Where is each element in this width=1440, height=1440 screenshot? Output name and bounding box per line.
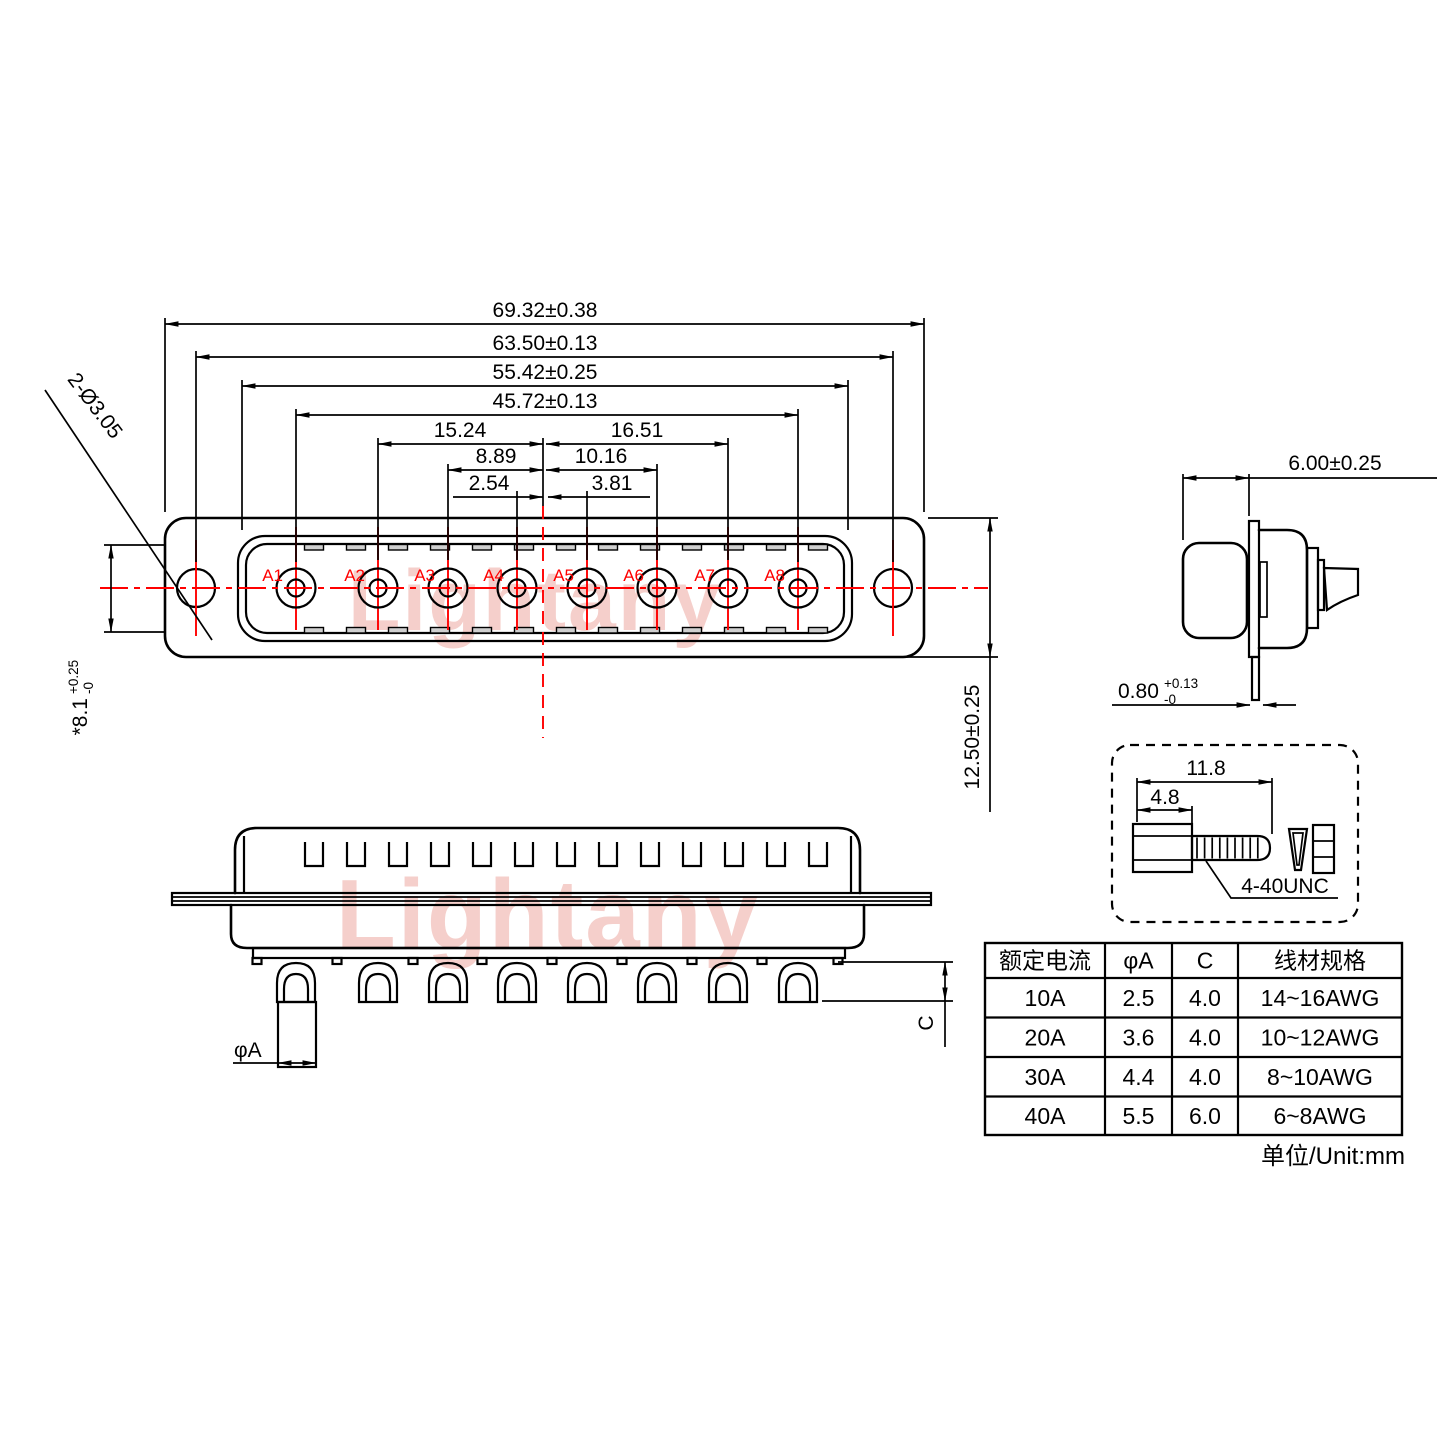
table-header-cell: 额定电流 [999, 948, 1091, 974]
shroud-slot-bottom [473, 628, 492, 634]
dim-opening-height: *8.1 [69, 698, 92, 735]
table-cell: 10A [1025, 985, 1067, 1011]
connector-drawing-svg: Lightany Lightany A1A2A3A4A5A6A7A8 [0, 0, 1440, 1440]
shroud-slot-bottom [599, 628, 618, 634]
solder-barrel-inner [284, 974, 308, 1002]
solder-barrel-inner [575, 974, 599, 1002]
unit-note: 单位/Unit:mm [1261, 1143, 1405, 1170]
technical-drawing-page: Lightany Lightany A1A2A3A4A5A6A7A8 [0, 0, 1440, 1440]
dim-pin-diameter-label: φA [234, 1039, 262, 1062]
shroud-slot-bottom [389, 628, 408, 634]
thread-spec-label: 4-40UNC [1241, 875, 1329, 898]
shroud-slot-bottom [683, 628, 702, 634]
shroud-slot-top [809, 545, 828, 551]
profile-cable-exit [1324, 568, 1358, 610]
solder-barrel-inner [366, 974, 390, 1002]
dim-center-a5: 3.81 [592, 472, 633, 495]
dim-a2-center: 15.24 [434, 419, 487, 442]
pin-label: A7 [694, 566, 715, 585]
table-cell: 8~10AWG [1267, 1064, 1373, 1090]
dim-shell-width: 55.42±0.25 [493, 361, 598, 384]
table-cell: 20A [1025, 1024, 1067, 1050]
shroud-slot-bottom [347, 628, 366, 634]
right-annotation: 12.50±0.25 [900, 518, 998, 812]
dim-overall-width: 69.32±0.38 [493, 299, 598, 322]
screw-ferrule-part [1313, 825, 1334, 873]
solder-barrel-inner [716, 974, 740, 1002]
table-cell: 30A [1025, 1064, 1067, 1090]
profile-flange-plate [1249, 521, 1259, 657]
shroud-slot-top [431, 545, 450, 551]
table-cell: 4.0 [1189, 985, 1221, 1011]
table-cell: 10~12AWG [1261, 1024, 1380, 1050]
shell-slot [809, 842, 827, 866]
table-cell: 14~16AWG [1261, 985, 1380, 1011]
solder-barrel-inner [786, 974, 810, 1002]
shroud-slot-top [305, 545, 324, 551]
profile-flange-tab [1252, 657, 1259, 700]
base-foot [834, 958, 843, 964]
pin-label: A2 [344, 566, 365, 585]
shell-slot [305, 842, 323, 866]
dim-mount-span: 63.50±0.13 [493, 332, 598, 355]
table-cell: 6~8AWG [1273, 1103, 1366, 1129]
pin-label: A8 [764, 566, 785, 585]
pin-label: A1 [262, 566, 283, 585]
table-cell: 6.0 [1189, 1103, 1221, 1129]
base-foot [253, 958, 262, 964]
side-pin-a1-extension [278, 1002, 316, 1067]
dim-a3-center: 8.89 [476, 445, 517, 468]
shroud-slot-bottom [557, 628, 576, 634]
dim-flange-height: 12.50±0.25 [961, 685, 984, 790]
table-cell: 5.5 [1123, 1103, 1155, 1129]
pin-label: A6 [623, 566, 644, 585]
watermark-side: Lightany [336, 859, 760, 969]
solder-barrel-outer [277, 963, 315, 1002]
dim-tail-length-label: C [915, 1015, 938, 1030]
profile-view: 6.00±0.25 0.80 +0.13 -0 [1112, 452, 1437, 707]
table-cell: 40A [1025, 1103, 1067, 1129]
dim-screw-head-length: 4.8 [1150, 786, 1179, 809]
dim-opening-height-tol-up: +0.25 [66, 660, 81, 694]
watermark-front: Lightany [348, 553, 722, 649]
screw-detail: 11.8 4.8 4-40UNC [1112, 745, 1358, 922]
table-header-cell: C [1197, 948, 1214, 974]
shroud-slot-bottom [431, 628, 450, 634]
left-annotations: 2-Ø3.05 *8.1 +0.25 -0 [45, 369, 212, 736]
dim-screw-total-length: 11.8 [1186, 757, 1225, 780]
solder-barrel-inner [505, 974, 529, 1002]
dim-flange-thickness: 0.80 [1118, 680, 1159, 703]
table-header-cell: φA [1123, 948, 1154, 974]
front-dimensions: 69.32±0.38 63.50±0.13 55.42±0.25 45.72±0… [165, 299, 924, 562]
profile-step1 [1307, 548, 1318, 628]
table-cell: 4.0 [1189, 1064, 1221, 1090]
shroud-slot-top [683, 545, 702, 551]
shroud-slot-top [599, 545, 618, 551]
solder-barrel-inner [645, 974, 669, 1002]
shroud-slot-bottom [305, 628, 324, 634]
shell-slot [767, 842, 785, 866]
shroud-slot-bottom [767, 628, 786, 634]
table-header-cell: 线材规格 [1274, 948, 1366, 974]
spec-table: 额定电流φAC线材规格10A2.54.014~16AWG20A3.64.010~… [985, 943, 1402, 1135]
screw-threads [1197, 838, 1258, 859]
screw-wedge-part [1289, 829, 1307, 870]
dim-flange-thickness-tol-up: +0.13 [1164, 676, 1198, 691]
shroud-slot-top [473, 545, 492, 551]
dim-flange-thickness-tol-dn: -0 [1164, 692, 1176, 707]
dim-center-a6: 10.16 [575, 445, 628, 468]
shroud-slot-top [347, 545, 366, 551]
pin-label: A3 [414, 566, 435, 585]
dim-a4-center: 2.54 [469, 472, 510, 495]
mount-hole-leader-line [45, 390, 212, 640]
table-cell: 4.4 [1123, 1064, 1155, 1090]
shroud-slot-bottom [809, 628, 828, 634]
profile-body [1183, 543, 1247, 638]
table-cell: 4.0 [1189, 1024, 1221, 1050]
shroud-slot-top [557, 545, 576, 551]
solder-barrel-outer [779, 963, 817, 1002]
screw-hex-head [1133, 824, 1192, 872]
dim-pin-span: 45.72±0.13 [493, 390, 598, 413]
pin-label: A5 [553, 566, 574, 585]
shroud-slot-top [389, 545, 408, 551]
table-cell: 2.5 [1123, 985, 1155, 1011]
solder-barrel-inner [436, 974, 460, 1002]
dim-center-a7: 16.51 [611, 419, 664, 442]
dim-opening-height-tol-dn: -0 [81, 682, 96, 694]
table-cell: 3.6 [1123, 1024, 1155, 1050]
pin-label: A4 [483, 566, 504, 585]
dim-body-depth: 6.00±0.25 [1288, 452, 1381, 475]
shroud-slot-top [767, 545, 786, 551]
